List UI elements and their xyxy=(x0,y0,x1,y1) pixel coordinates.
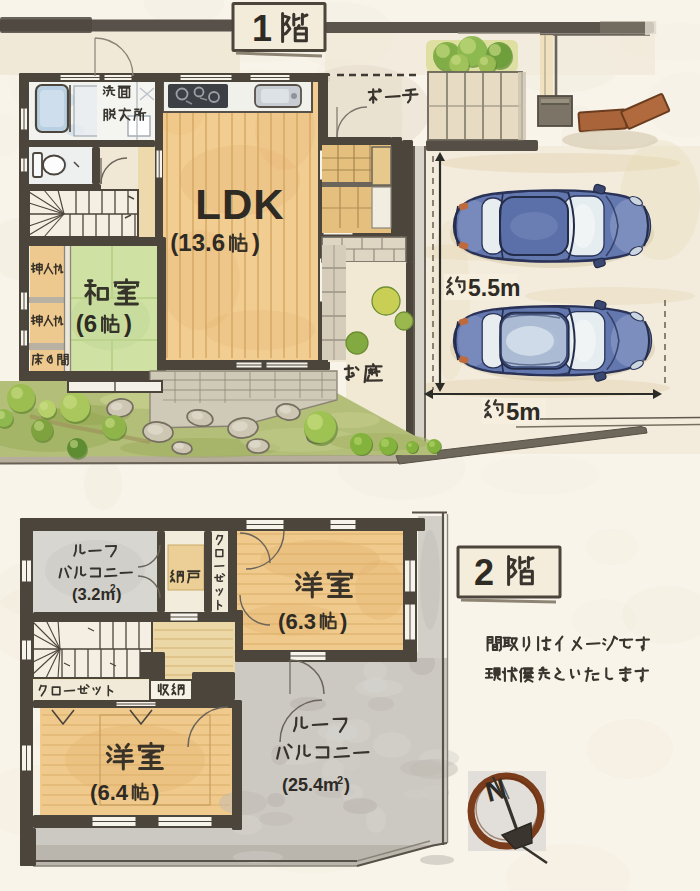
svg-text:2: 2 xyxy=(337,774,343,786)
svg-text:5m: 5m xyxy=(506,398,541,425)
svg-text:): ) xyxy=(344,775,350,795)
svg-text:): ) xyxy=(152,780,159,805)
svg-text:5.5m: 5.5m xyxy=(468,275,520,301)
svg-text:(3.2m: (3.2m xyxy=(72,585,115,603)
svg-text:(6.4: (6.4 xyxy=(90,780,129,805)
svg-text:): ) xyxy=(340,609,347,634)
svg-text:1: 1 xyxy=(252,8,272,49)
svg-text:(25.4m: (25.4m xyxy=(282,775,339,795)
svg-text:): ) xyxy=(252,229,260,256)
svg-text:LDK: LDK xyxy=(195,181,284,228)
svg-text:2: 2 xyxy=(474,552,494,593)
svg-text:): ) xyxy=(124,310,132,337)
svg-text:(6.3: (6.3 xyxy=(278,609,316,634)
svg-text:): ) xyxy=(116,585,122,603)
svg-text:(6: (6 xyxy=(76,310,97,337)
svg-text:(13.6: (13.6 xyxy=(170,229,225,256)
